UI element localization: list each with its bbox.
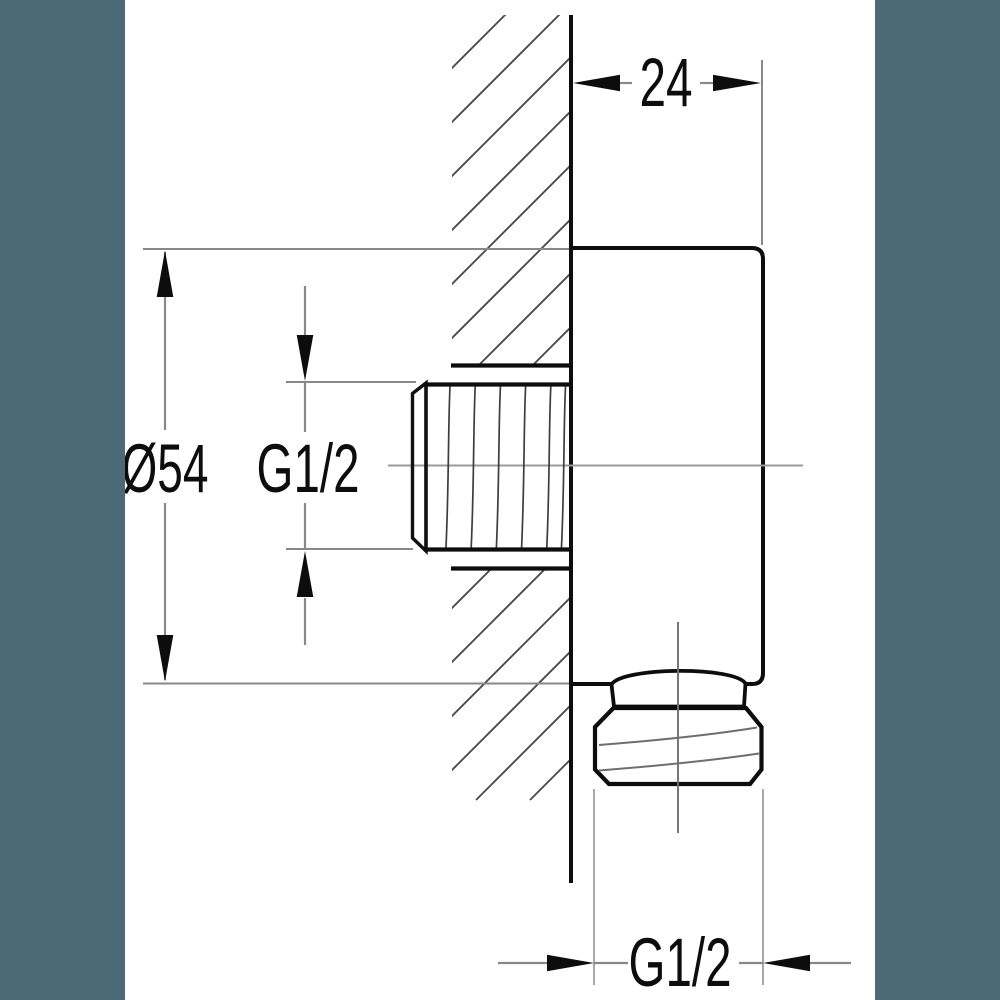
svg-text:G1/2: G1/2 [629,924,732,1000]
svg-text:Ø54: Ø54 [122,430,209,507]
svg-text:G1/2: G1/2 [257,430,360,507]
svg-text:24: 24 [640,44,693,121]
